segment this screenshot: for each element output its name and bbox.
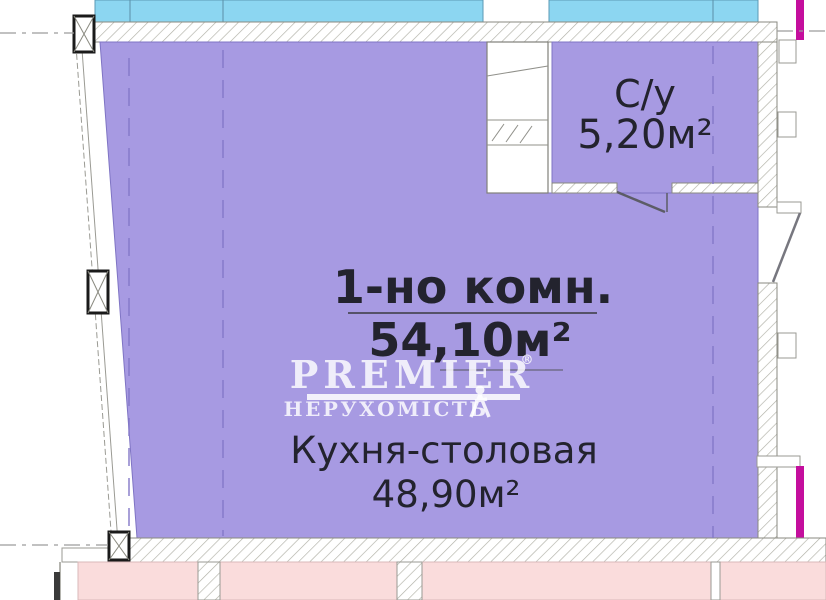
watermark-brand: PREMIER	[290, 352, 535, 397]
window-frame-middle	[88, 271, 108, 313]
neighbor-wall	[711, 562, 720, 600]
kitchen-label: Кухня-столовая	[290, 429, 597, 472]
watermark-subtitle: НЕРУХОМІСТЬ	[284, 397, 489, 421]
floor-plan-page: С/у 5,20м² 1-но комн. 54,10м² PREMIER ® …	[0, 0, 826, 600]
vent-shaft	[487, 42, 548, 193]
window-frame-top	[74, 16, 94, 52]
magenta-marker-bottom	[796, 466, 804, 544]
bathroom-wall-right	[672, 183, 758, 193]
watermark-registered-icon: ®	[521, 353, 534, 368]
apartment-type-label: 1-но комн.	[333, 260, 613, 314]
wall-top	[95, 22, 777, 42]
facade-ledge	[778, 333, 796, 358]
wall-bottom	[130, 538, 826, 562]
floor-plan-drawing: С/у 5,20м² 1-но комн. 54,10м² PREMIER ® …	[0, 0, 826, 600]
entrance-door-ledge	[777, 202, 801, 213]
wall-right-upper	[758, 42, 777, 207]
wall-right-lower	[758, 283, 777, 540]
neighbor-wall	[397, 562, 422, 600]
neighbor-wall	[198, 562, 220, 600]
facade-ledge	[757, 456, 800, 467]
vent-shaft-box	[487, 42, 548, 193]
facade-ledge	[779, 40, 796, 63]
bathroom-area-value: 5,20м²	[577, 112, 712, 158]
entrance-door-leaf	[773, 213, 800, 282]
window-frame-bottom	[109, 532, 129, 560]
bathroom-wall-left	[552, 183, 617, 193]
kitchen-area-value: 48,90м²	[372, 473, 521, 516]
balcony-glazing-left	[95, 0, 483, 22]
magenta-marker-top	[796, 0, 804, 40]
bathroom-label: С/у	[614, 72, 676, 116]
facade-ledge	[778, 112, 796, 137]
neighbor-wall-post	[54, 572, 60, 600]
balcony-glazing-right	[549, 0, 758, 22]
